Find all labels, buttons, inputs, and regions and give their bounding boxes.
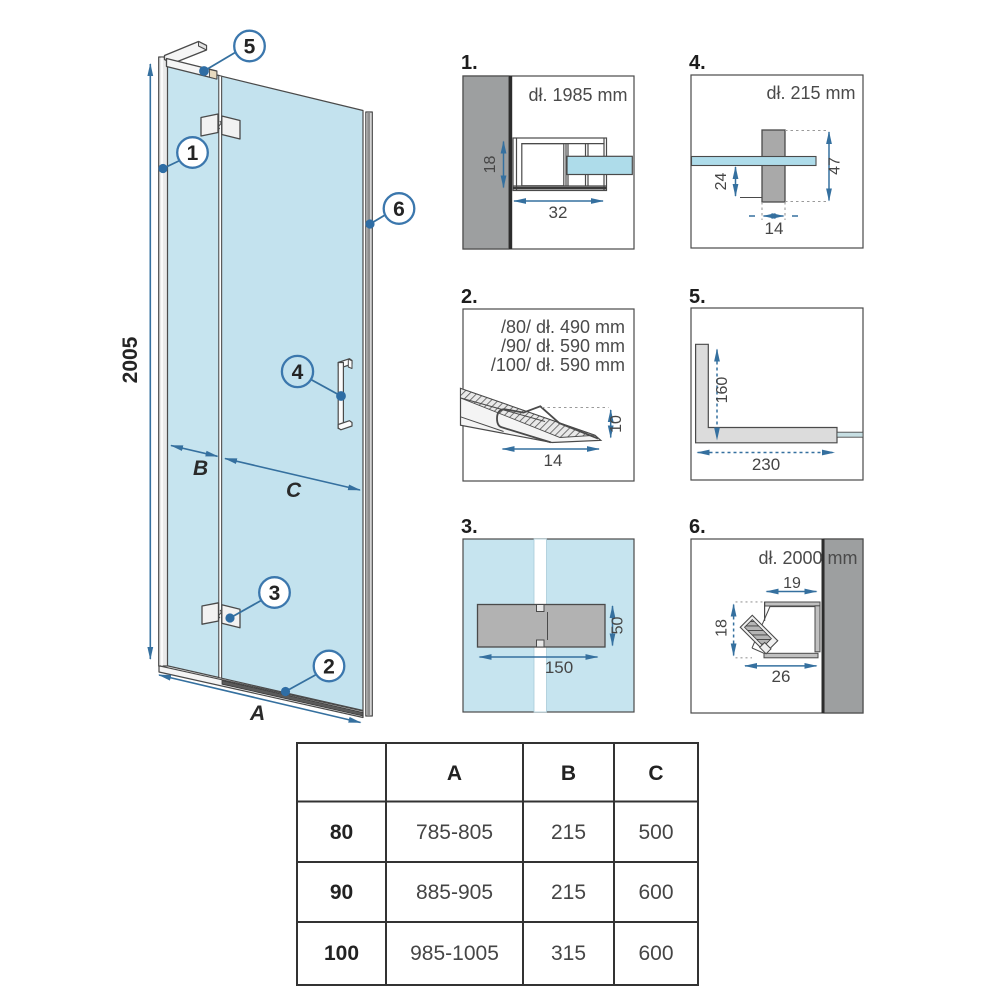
svg-text:150: 150 — [545, 658, 573, 677]
svg-text:dł. 2000 mm: dł. 2000 mm — [758, 548, 857, 568]
svg-text:19: 19 — [783, 575, 801, 592]
svg-text:24: 24 — [713, 173, 730, 191]
svg-text:18: 18 — [482, 156, 499, 174]
svg-text:dł. 215 mm: dł. 215 mm — [766, 83, 855, 103]
svg-text:215: 215 — [551, 821, 586, 844]
svg-text:32: 32 — [549, 203, 568, 222]
svg-text:4: 4 — [292, 361, 304, 384]
svg-text:600: 600 — [638, 881, 673, 904]
svg-text:5.: 5. — [689, 286, 706, 308]
svg-text:230: 230 — [752, 455, 780, 474]
svg-text:80: 80 — [330, 821, 353, 844]
svg-text:100: 100 — [324, 942, 359, 965]
svg-text:26: 26 — [772, 667, 791, 686]
svg-text:B: B — [561, 762, 576, 785]
svg-text:3.: 3. — [461, 516, 478, 538]
svg-text:2005: 2005 — [119, 336, 142, 383]
svg-text:5: 5 — [244, 36, 256, 59]
svg-text:10: 10 — [608, 415, 625, 433]
svg-text:A: A — [249, 702, 265, 725]
svg-text:90: 90 — [330, 881, 353, 904]
svg-text:1.: 1. — [461, 52, 478, 74]
svg-text:A: A — [447, 762, 462, 785]
svg-text:C: C — [286, 479, 302, 502]
svg-text:2: 2 — [323, 656, 335, 679]
svg-text:885-905: 885-905 — [416, 881, 493, 904]
svg-text:2.: 2. — [461, 286, 478, 308]
svg-text:985-1005: 985-1005 — [410, 942, 499, 965]
svg-text:160: 160 — [714, 377, 731, 404]
svg-text:315: 315 — [551, 942, 586, 965]
svg-text:dł. 1985 mm: dł. 1985 mm — [528, 85, 627, 105]
svg-text:C: C — [648, 762, 663, 785]
svg-text:18: 18 — [714, 619, 731, 637]
svg-text:/80/ dł. 490 mm: /80/ dł. 490 mm — [501, 317, 625, 337]
svg-text:500: 500 — [638, 821, 673, 844]
svg-text:50: 50 — [610, 617, 627, 635]
svg-text:B: B — [193, 457, 208, 480]
svg-text:/90/ dł. 590 mm: /90/ dł. 590 mm — [501, 336, 625, 356]
svg-text:14: 14 — [544, 451, 563, 470]
svg-text:47: 47 — [827, 157, 844, 175]
svg-text:215: 215 — [551, 881, 586, 904]
svg-text:4.: 4. — [689, 52, 706, 74]
svg-text:6.: 6. — [689, 516, 706, 538]
svg-text:600: 600 — [638, 942, 673, 965]
svg-text:14: 14 — [765, 219, 784, 238]
svg-text:3: 3 — [269, 582, 281, 605]
svg-text:/100/ dł. 590 mm: /100/ dł. 590 mm — [491, 355, 625, 375]
svg-text:6: 6 — [393, 198, 405, 221]
svg-text:785-805: 785-805 — [416, 821, 493, 844]
svg-text:1: 1 — [187, 142, 199, 165]
